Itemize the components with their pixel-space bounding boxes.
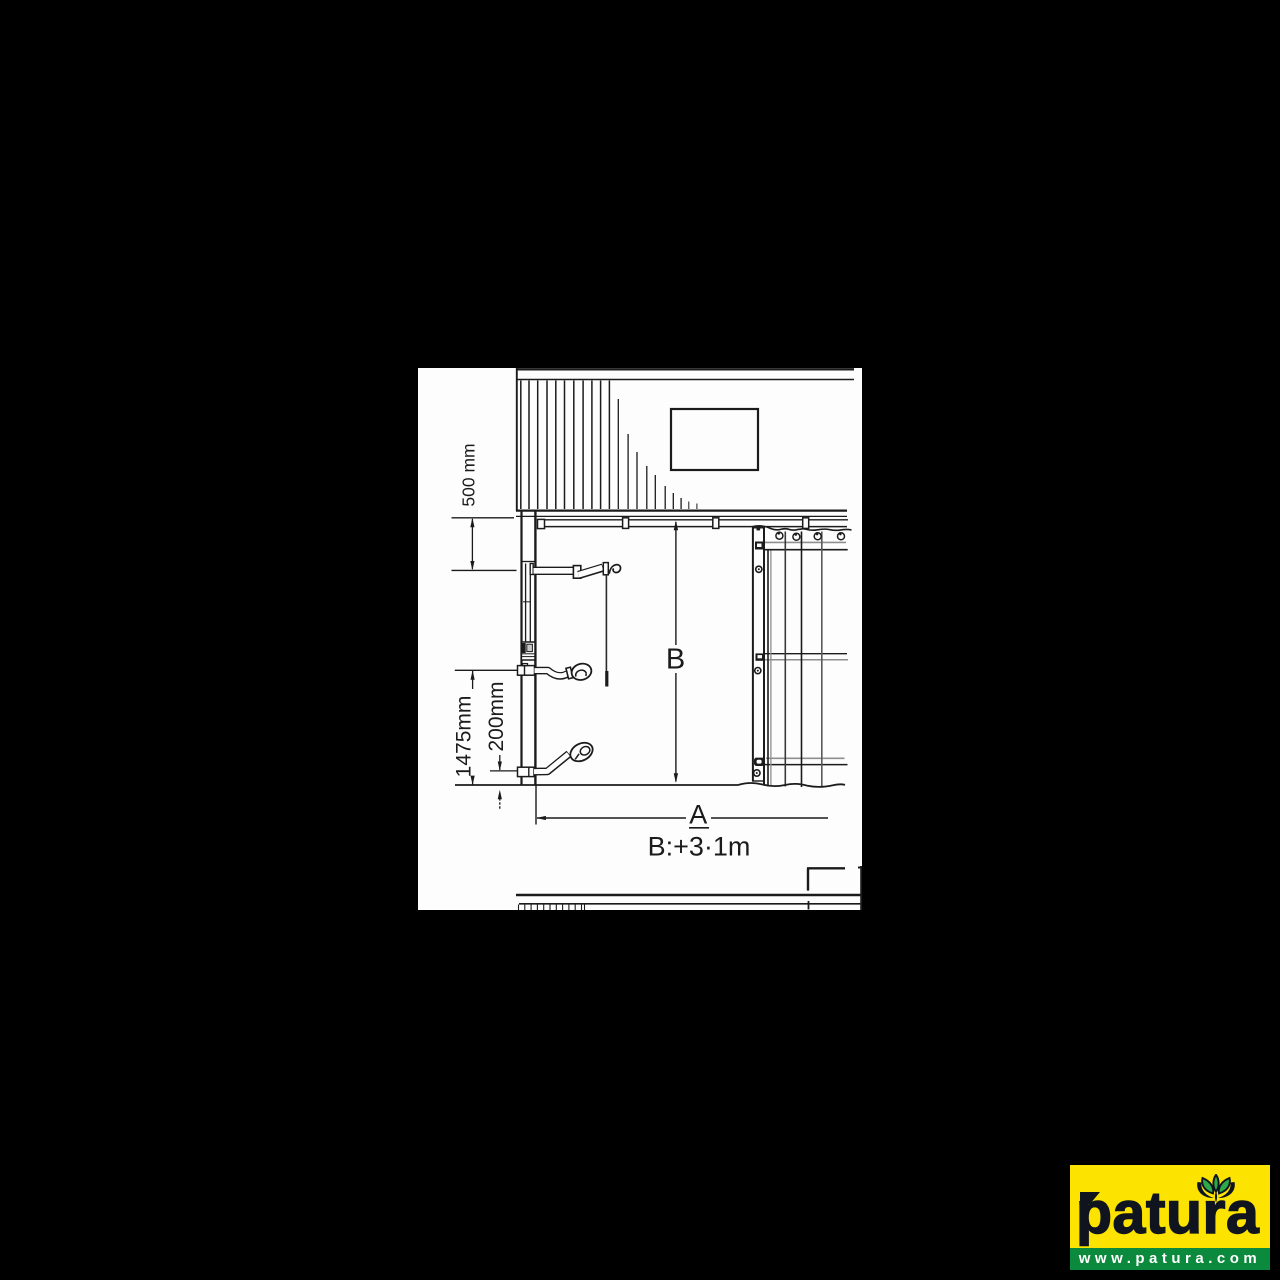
svg-text:200mm: 200mm (485, 681, 508, 751)
svg-text:1475mm: 1475mm (453, 696, 476, 778)
svg-text:500 mm: 500 mm (459, 443, 479, 506)
svg-text:B: B (666, 644, 685, 676)
svg-text:A: A (689, 800, 707, 830)
svg-text:B:+3·1m: B:+3·1m (648, 832, 751, 862)
